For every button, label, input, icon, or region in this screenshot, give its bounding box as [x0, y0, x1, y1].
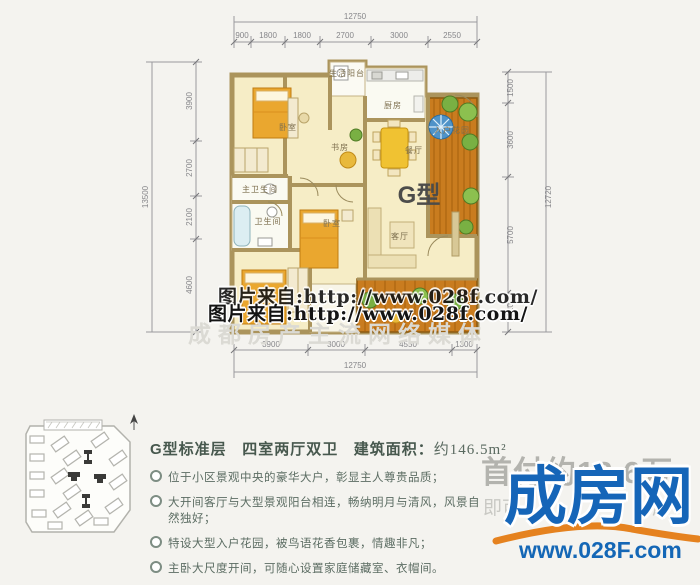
list-item: 位于小区景观中央的豪华大户，彰显主人尊贵品质； [150, 469, 485, 485]
dim-top-4: 3000 [390, 31, 408, 40]
bullet-icon [150, 495, 162, 507]
dim-left-3: 4600 [185, 276, 194, 294]
dim-right-1: 3600 [506, 131, 515, 149]
unit-title: G型标准层 四室两厅双卫 建筑面积：约146.5m² [150, 438, 485, 459]
dim-left-0: 3900 [185, 92, 194, 110]
site-plan-thumbnail [18, 410, 148, 555]
list-item: 主卧大尺度开间，可随心设置家庭储藏室、衣帽间。 [150, 560, 485, 576]
dim-top-2: 1800 [293, 31, 311, 40]
dim-top-3: 2700 [336, 31, 354, 40]
dim-top-total: 12750 [344, 12, 367, 21]
bullet-icon [150, 536, 162, 548]
bullet-text: 主卧大尺度开间，可随心设置家庭储藏室、衣帽间。 [168, 560, 444, 576]
list-item: 大开间客厅与大型景观阳台相连，畅纳明月与清风，风景自然独好； [150, 494, 485, 526]
dim-right-total: 12720 [544, 185, 553, 208]
label-kitchen: 厨房 [384, 100, 402, 110]
area-label: 建筑面积： [354, 441, 434, 458]
label-master-bath: 主卫生间 [242, 184, 278, 194]
page: { "floorplan": { "type_label": "G型", "ro… [0, 0, 700, 580]
area-value: 约146.5m² [434, 442, 507, 458]
label-entry-garden: 入户花园 [434, 125, 470, 135]
dim-top-1: 1800 [259, 31, 277, 40]
label-bedroom-top: 卧室 [279, 122, 297, 132]
dim-left-2: 2100 [185, 208, 194, 226]
photo-watermark: 图片来自:http://www.028f.com/ [208, 299, 528, 326]
bullet-text: 特设大型入户花园，被鸟语花香包裹，情趣非凡； [168, 535, 432, 551]
dim-top-0: 900 [235, 31, 249, 40]
list-item: 特设大型入户花园，被鸟语花香包裹，情趣非凡； [150, 535, 485, 551]
dim-bottom-total: 12750 [344, 361, 367, 370]
dim-top-5: 2550 [443, 31, 461, 40]
bullet-icon [150, 470, 162, 482]
dim-left-total: 13500 [141, 185, 150, 208]
label-living: 客厅 [391, 231, 409, 241]
dim-right-2: 5700 [506, 226, 515, 244]
unit-type-label: G型 [398, 182, 441, 209]
label-bedroom-mid: 卧室 [323, 218, 341, 228]
label-study: 书房 [331, 142, 349, 152]
unit-type: G型标准层 [150, 441, 227, 458]
bullet-text: 大开间客厅与大型景观阳台相连，畅纳明月与清风，风景自然独好； [168, 494, 485, 526]
north-arrow-icon [130, 414, 138, 430]
site-url-text: www.028F.com [519, 537, 682, 564]
label-bath: 卫生间 [255, 216, 282, 226]
selling-points: 位于小区景观中央的豪华大户，彰显主人尊贵品质； 大开间客厅与大型景观阳台相连，畅… [150, 469, 485, 576]
bullet-text: 位于小区景观中央的豪华大户，彰显主人尊贵品质； [168, 469, 444, 485]
label-living-balcony: 生活阳台 [329, 68, 365, 78]
bullet-icon [150, 561, 162, 573]
unit-layout: 四室两厅双卫 [242, 441, 338, 458]
dim-right-0: 1500 [506, 79, 515, 97]
unit-info: G型标准层 四室两厅双卫 建筑面积：约146.5m² 位于小区景观中央的豪华大户… [150, 438, 485, 585]
dim-left-1: 2700 [185, 159, 194, 177]
label-dining: 餐厅 [405, 146, 423, 155]
chengfang-logo: 成房网 [504, 466, 693, 529]
